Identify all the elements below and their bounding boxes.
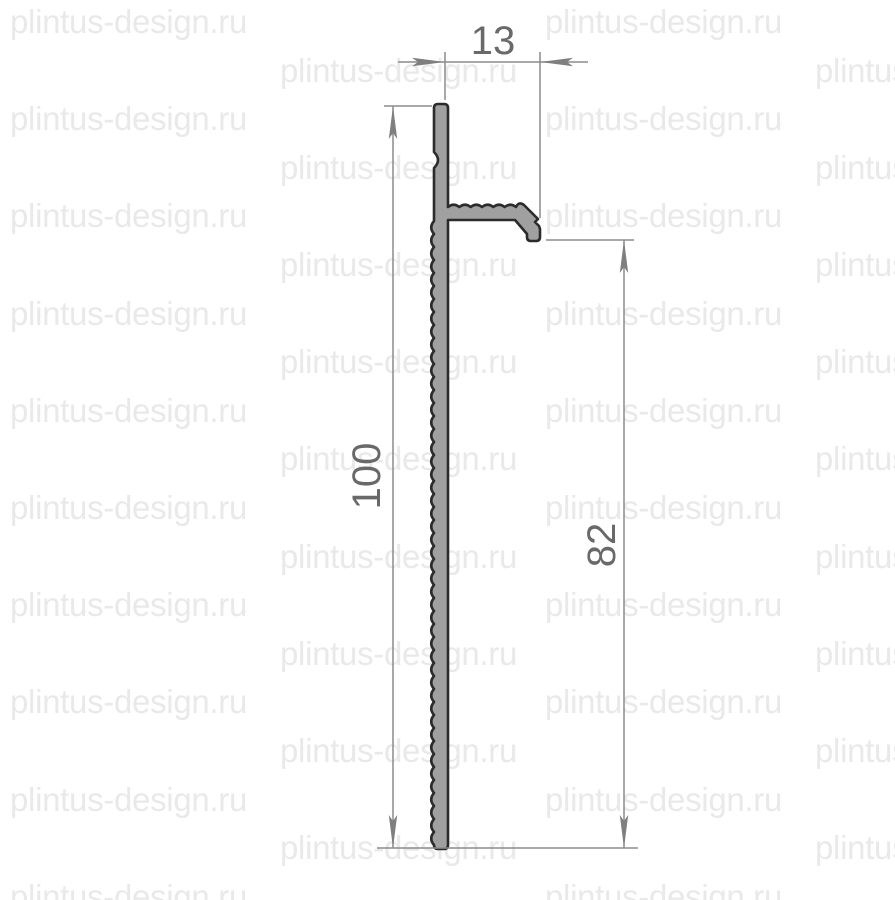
dimension-label-right-height: 82 [580,523,624,568]
dimension-top-width: 13 [398,19,588,218]
profile-cross-section [431,104,540,849]
dimension-right-height: 82 [546,240,634,848]
dimension-label-left-height: 100 [345,443,389,510]
dimension-left-height: 100 [345,106,432,848]
profile-drawing: 13 100 82 [0,0,895,900]
dimension-label-top-width: 13 [471,19,516,63]
technical-drawing-page: plintus-design.ruplintus-design.ruplintu… [0,0,895,900]
